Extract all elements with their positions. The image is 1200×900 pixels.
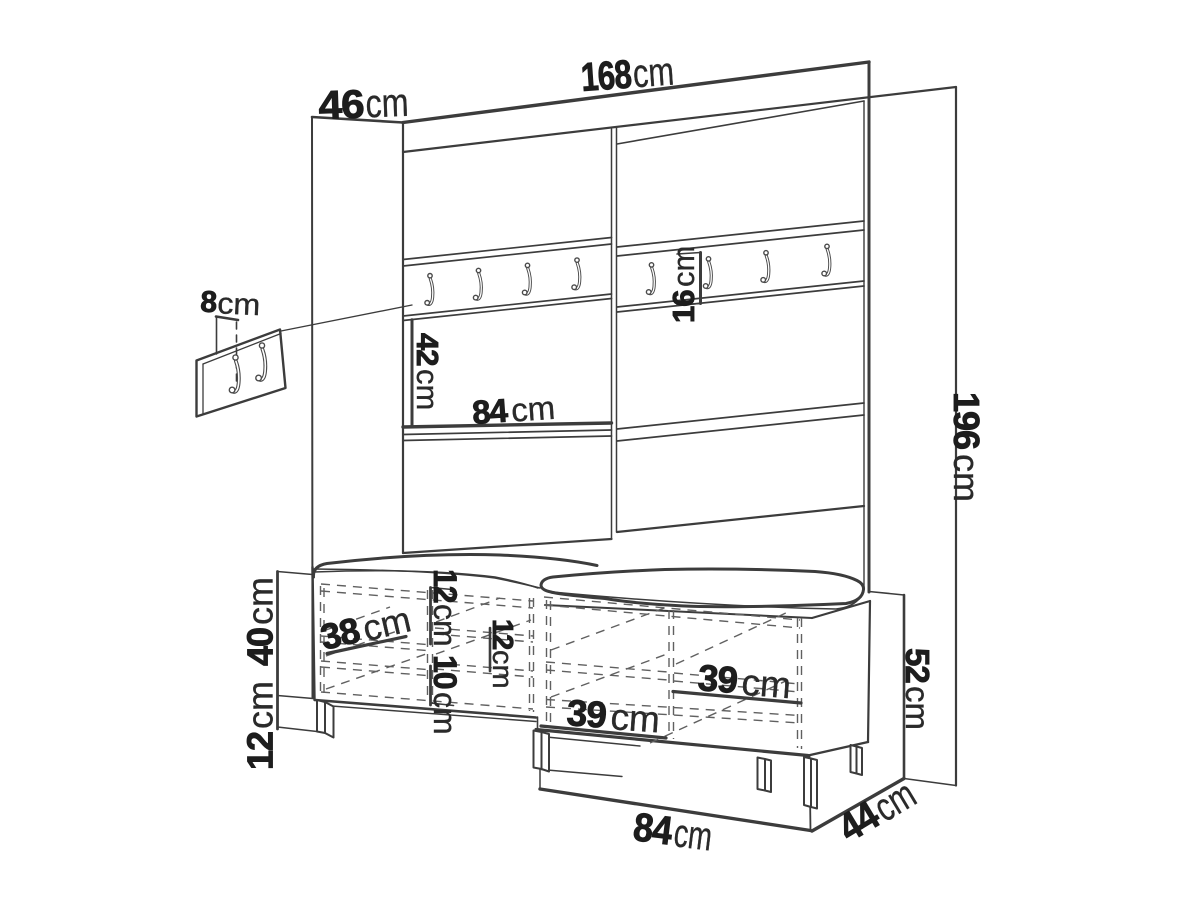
svg-text:12: 12	[486, 619, 518, 649]
svg-text:cm: cm	[427, 692, 463, 735]
svg-text:42: 42	[410, 333, 445, 365]
svg-text:39: 39	[565, 692, 607, 736]
svg-text:cm: cm	[740, 662, 792, 707]
svg-text:52: 52	[899, 648, 936, 683]
svg-text:84: 84	[631, 805, 676, 853]
svg-text:cm: cm	[427, 604, 463, 647]
svg-text:cm: cm	[510, 389, 556, 429]
svg-text:cm: cm	[631, 50, 675, 97]
svg-text:cm: cm	[240, 681, 281, 729]
svg-text:12: 12	[427, 569, 463, 603]
svg-text:196: 196	[946, 392, 987, 449]
svg-text:cm: cm	[410, 369, 445, 410]
svg-text:cm: cm	[240, 577, 281, 625]
svg-text:cm: cm	[899, 686, 936, 730]
svg-text:12: 12	[240, 732, 281, 770]
svg-text:cm: cm	[217, 287, 261, 322]
svg-text:cm: cm	[671, 811, 714, 859]
svg-text:cm: cm	[609, 696, 661, 740]
svg-text:cm: cm	[666, 246, 701, 287]
svg-text:8: 8	[200, 286, 217, 320]
svg-text:cm: cm	[946, 454, 987, 502]
svg-text:10: 10	[427, 655, 463, 689]
svg-text:46: 46	[318, 82, 365, 128]
svg-text:39: 39	[696, 657, 739, 701]
svg-text:168: 168	[580, 53, 634, 100]
svg-text:16: 16	[666, 290, 701, 323]
svg-text:84: 84	[471, 392, 510, 431]
svg-text:40: 40	[240, 628, 281, 666]
svg-text:cm: cm	[365, 81, 410, 126]
svg-text:cm: cm	[486, 650, 518, 689]
